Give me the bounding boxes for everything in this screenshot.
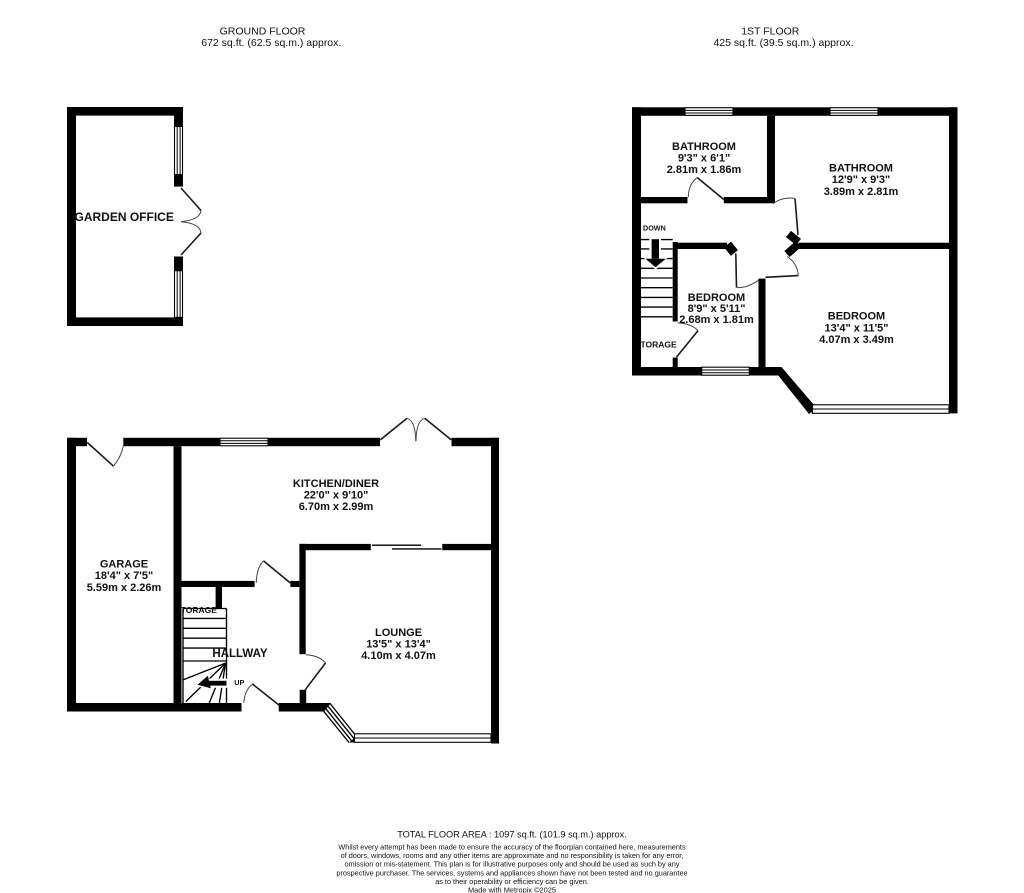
svg-text:12'9" x 9'3": 12'9" x 9'3" bbox=[832, 174, 890, 186]
svg-text:TORAGE: TORAGE bbox=[181, 605, 218, 615]
svg-text:13'4" x 11'5": 13'4" x 11'5" bbox=[825, 322, 889, 334]
svg-text:BATHROOM: BATHROOM bbox=[829, 163, 893, 175]
svg-text:Whilst every attempt has been: Whilst every attempt has been made to en… bbox=[338, 842, 686, 851]
svg-text:GROUND FLOOR: GROUND FLOOR bbox=[220, 25, 306, 37]
svg-text:13'5" x 13'4": 13'5" x 13'4" bbox=[366, 638, 431, 650]
svg-text:BATHROOM: BATHROOM bbox=[672, 141, 736, 153]
svg-text:BEDROOM: BEDROOM bbox=[828, 311, 885, 323]
svg-text:UP: UP bbox=[234, 678, 244, 687]
svg-text:prospective purchaser. The ser: prospective purchaser. The services, sys… bbox=[336, 868, 687, 877]
svg-text:KITCHEN/DINER: KITCHEN/DINER bbox=[293, 478, 379, 490]
svg-text:4.07m x 3.49m: 4.07m x 3.49m bbox=[819, 334, 894, 346]
svg-text:Made with Metropix ©2025: Made with Metropix ©2025 bbox=[468, 885, 556, 893]
svg-text:LOUNGE: LOUNGE bbox=[375, 627, 422, 639]
svg-text:672 sq.ft. (62.5 sq.m.) approx: 672 sq.ft. (62.5 sq.m.) approx. bbox=[201, 37, 341, 49]
svg-text:DOWN: DOWN bbox=[643, 223, 666, 232]
svg-text:of doors, windows, rooms and a: of doors, windows, rooms and any other i… bbox=[341, 851, 684, 860]
svg-text:2.68m x 1.81m: 2.68m x 1.81m bbox=[679, 314, 754, 326]
svg-text:GARDEN OFFICE: GARDEN OFFICE bbox=[75, 210, 174, 224]
svg-text:6.70m x 2.99m: 6.70m x 2.99m bbox=[299, 501, 374, 513]
svg-text:TORAGE: TORAGE bbox=[641, 339, 678, 349]
svg-text:TOTAL FLOOR AREA : 1097 sq.ft.: TOTAL FLOOR AREA : 1097 sq.ft. (101.9 sq… bbox=[397, 830, 627, 840]
svg-text:omission or mis-statement. Thi: omission or mis-statement. This plan is … bbox=[345, 860, 680, 869]
svg-text:GARAGE: GARAGE bbox=[100, 559, 148, 571]
svg-text:22'0" x 9'10": 22'0" x 9'10" bbox=[304, 490, 369, 502]
svg-text:3.89m x 2.81m: 3.89m x 2.81m bbox=[824, 186, 899, 198]
svg-text:4.10m x 4.07m: 4.10m x 4.07m bbox=[361, 650, 436, 662]
svg-text:5.59m x 2.26m: 5.59m x 2.26m bbox=[87, 582, 162, 594]
svg-text:9'3" x 6'1": 9'3" x 6'1" bbox=[678, 152, 730, 164]
svg-text:2.81m x 1.86m: 2.81m x 1.86m bbox=[667, 164, 742, 176]
svg-text:HALLWAY: HALLWAY bbox=[212, 648, 267, 660]
svg-text:1ST FLOOR: 1ST FLOOR bbox=[741, 25, 800, 37]
svg-text:425 sq.ft. (39.5 sq.m.) approx: 425 sq.ft. (39.5 sq.m.) approx. bbox=[713, 37, 853, 49]
svg-text:18'4" x 7'5": 18'4" x 7'5" bbox=[95, 570, 153, 582]
